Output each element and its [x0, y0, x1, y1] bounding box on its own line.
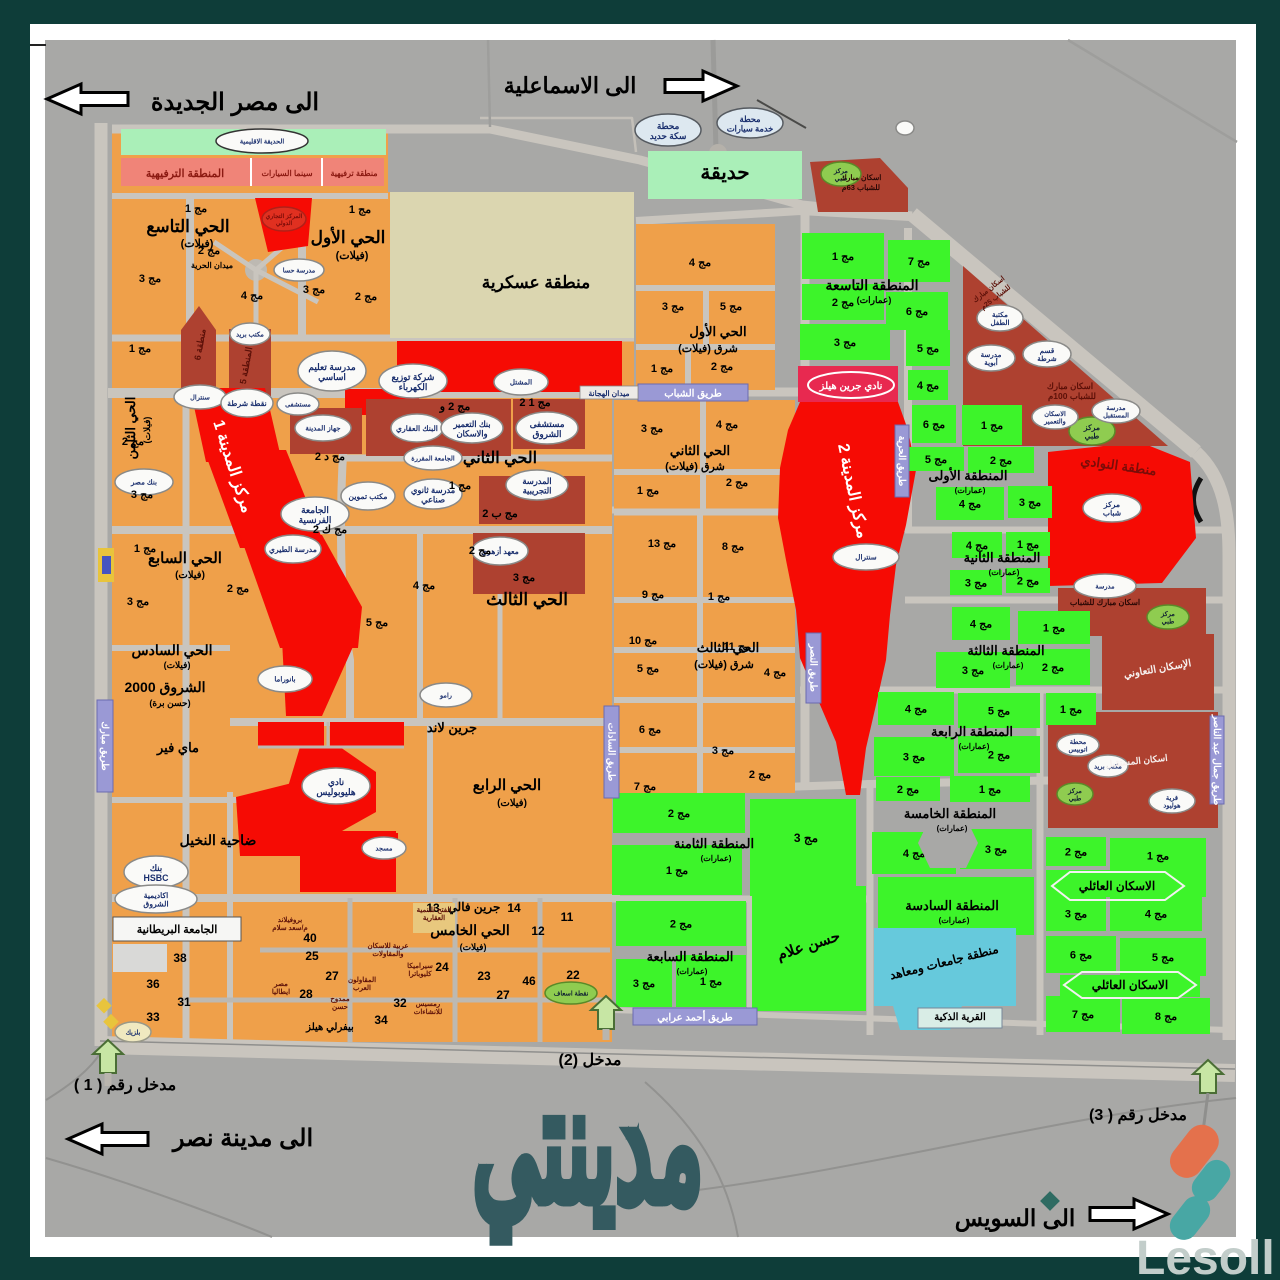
svg-text:الى مدينة نصر: الى مدينة نصر	[171, 1125, 313, 1153]
svg-text:مج 7: مج 7	[1072, 1009, 1094, 1021]
svg-text:سكة حديد: سكة حديد	[650, 131, 687, 141]
svg-text:التجريبية: التجريبية	[523, 486, 552, 496]
svg-text:(فيلات): (فيلات)	[497, 798, 527, 809]
svg-text:مج 13: مج 13	[648, 538, 676, 550]
svg-text:مج 3: مج 3	[962, 665, 984, 677]
svg-text:هليوبوليس: هليوبوليس	[316, 787, 355, 798]
svg-text:البنك العقاري: البنك العقاري	[396, 424, 438, 434]
svg-text:القرية الذكية: القرية الذكية	[934, 1012, 986, 1023]
svg-text:مج 2: مج 2	[1017, 576, 1039, 588]
svg-text:ممدوح: ممدوح	[330, 996, 350, 1003]
svg-text:27: 27	[496, 988, 510, 1002]
svg-text:الشروق 2000: الشروق 2000	[124, 679, 205, 696]
svg-text:شباب: شباب	[1103, 509, 1122, 518]
svg-text:مج 5: مج 5	[720, 301, 742, 313]
svg-text:12: 12	[531, 924, 545, 938]
svg-text:محطة: محطة	[740, 115, 761, 124]
svg-text:اسكان مبارك: اسكان مبارك	[841, 173, 882, 183]
svg-text:طريق النصر: طريق النصر	[808, 643, 819, 692]
svg-text:مج 1: مج 1	[185, 203, 207, 215]
svg-text:مج ب 2: مج ب 2	[482, 508, 518, 520]
svg-text:طبي: طبي	[1069, 795, 1082, 804]
svg-text:مج 1: مج 1	[979, 784, 1001, 796]
svg-text:مج 4: مج 4	[241, 290, 263, 302]
svg-text:شرق (فيلات): شرق (فيلات)	[678, 343, 738, 355]
svg-text:مج 3: مج 3	[139, 273, 161, 285]
svg-text:مج 3: مج 3	[641, 423, 663, 435]
svg-text:الجامعة البريطانية: الجامعة البريطانية	[137, 924, 218, 936]
svg-text:مج 5: مج 5	[1152, 952, 1174, 964]
svg-text:مركز: مركز	[1067, 787, 1082, 795]
svg-text:(عمارات): (عمارات)	[959, 742, 990, 752]
svg-text:34: 34	[374, 1013, 388, 1027]
svg-text:مج 10: مج 10	[629, 635, 657, 647]
svg-text:سيراميكا: سيراميكا	[407, 962, 433, 970]
svg-text:العقارية: العقارية	[423, 914, 445, 922]
svg-text:شرق (فيلات): شرق (فيلات)	[694, 659, 754, 671]
svg-text:اتوبيس: اتوبيس	[1068, 746, 1087, 754]
svg-text:مدخل رقم ( 1 ): مدخل رقم ( 1 )	[74, 1077, 176, 1095]
svg-text:مج 2: مج 2	[198, 245, 220, 257]
svg-text:الاسكان العائلي: الاسكان العائلي	[1092, 978, 1168, 993]
svg-text:ميدان الحرية: ميدان الحرية	[191, 261, 233, 271]
svg-text:مج 2: مج 2	[990, 455, 1012, 467]
svg-text:بانوراما: بانوراما	[274, 676, 295, 684]
svg-text:اساسي: اساسي	[318, 372, 346, 383]
svg-text:بنك مصر: بنك مصر	[130, 479, 157, 487]
svg-text:مدينتي: مدينتي	[473, 1055, 704, 1242]
svg-text:مستشفى: مستشفى	[530, 419, 565, 429]
svg-text:(عمارات): (عمارات)	[677, 967, 708, 977]
svg-text:مج 2 و: مج 2 و	[439, 401, 471, 413]
svg-text:طبي: طبي	[1162, 618, 1175, 627]
svg-text:الاسكان: الاسكان	[1044, 410, 1066, 418]
svg-text:جرين لاند: جرين لاند	[427, 720, 477, 736]
svg-text:بلزيك: بلزيك	[126, 1028, 141, 1036]
svg-text:مج 5: مج 5	[366, 617, 388, 629]
svg-text:مدرسة: مدرسة	[1106, 405, 1126, 412]
svg-text:مج 7: مج 7	[634, 781, 656, 793]
svg-text:(عمارات): (عمارات)	[993, 661, 1024, 671]
svg-text:الحي الخامس: الحي الخامس	[430, 922, 510, 939]
svg-text:مج 3: مج 3	[131, 489, 153, 501]
svg-text:(فيلات): (فيلات)	[336, 250, 369, 262]
svg-text:مستشفى: مستشفى	[285, 401, 311, 408]
svg-text:23: 23	[477, 969, 491, 983]
svg-text:مج 3: مج 3	[1019, 497, 1041, 509]
svg-text:31: 31	[177, 995, 191, 1009]
svg-text:مج 3: مج 3	[127, 596, 149, 608]
svg-text:مج 1: مج 1	[700, 976, 722, 988]
svg-text:سنترال: سنترال	[190, 394, 210, 402]
svg-text:مج 4: مج 4	[716, 419, 738, 431]
svg-text:المنطقة السابعة: المنطقة السابعة	[647, 949, 734, 964]
svg-text:(حسن برة): (حسن برة)	[149, 698, 190, 709]
svg-text:مج 3: مج 3	[985, 844, 1007, 856]
svg-text:32: 32	[393, 996, 407, 1010]
svg-text:المنطقة السادسة: المنطقة السادسة	[905, 898, 999, 913]
svg-text:24: 24	[435, 960, 449, 974]
svg-text:مج 5: مج 5	[917, 343, 939, 355]
svg-text:مج 2: مج 2	[355, 291, 377, 303]
svg-text:مج 11: مج 11	[723, 641, 751, 653]
svg-text:الكهرباء: الكهرباء	[399, 382, 428, 393]
svg-text:27: 27	[325, 969, 339, 983]
svg-text:الطفل: الطفل	[990, 319, 1009, 327]
svg-text:المشتل: المشتل	[510, 379, 532, 387]
svg-text:مج 3: مج 3	[1065, 909, 1087, 921]
svg-text:مج 1: مج 1	[134, 543, 156, 555]
svg-text:المنطقة الرابعة: المنطقة الرابعة	[931, 724, 1013, 740]
svg-text:مج 1: مج 1	[832, 251, 854, 263]
svg-text:صناعي: صناعي	[421, 495, 445, 505]
svg-text:حديقة: حديقة	[700, 162, 749, 184]
svg-text:مج 4: مج 4	[689, 257, 711, 269]
svg-text:مج 1: مج 1	[708, 591, 730, 603]
svg-text:مج 4: مج 4	[764, 667, 786, 679]
svg-text:مج 3: مج 3	[303, 284, 325, 296]
svg-text:عربية للاسكان: عربية للاسكان	[367, 942, 408, 950]
svg-text:مج 2: مج 2	[122, 436, 144, 448]
svg-text:مج 1: مج 1	[637, 485, 659, 497]
svg-text:نادي جرين هيلز: نادي جرين هيلز	[819, 381, 883, 392]
svg-text:الحي الثالث: الحي الثالث	[486, 590, 568, 610]
svg-text:مج 1: مج 1	[1060, 704, 1082, 716]
svg-text:محطة: محطة	[1070, 738, 1087, 746]
svg-text:مج 1: مج 1	[666, 865, 688, 877]
svg-text:مج 1: مج 1	[981, 420, 1003, 432]
svg-text:مج 2: مج 2	[749, 769, 771, 781]
svg-text:(عمارات): (عمارات)	[939, 916, 970, 926]
svg-text:مسجد: مسجد	[376, 845, 393, 852]
svg-text:(فيلات): (فيلات)	[460, 942, 487, 952]
svg-text:منطقة عسكرية: منطقة عسكرية	[482, 273, 591, 293]
svg-text:مج 8: مج 8	[722, 541, 744, 553]
svg-text:مدرسة: مدرسة	[1095, 584, 1115, 591]
svg-text:مج 5: مج 5	[988, 706, 1010, 718]
svg-text:المقاولون: المقاولون	[348, 976, 376, 984]
svg-text:مج 4: مج 4	[917, 380, 939, 392]
svg-text:مج 6: مج 6	[906, 306, 928, 318]
svg-text:ضاحية النخيل: ضاحية النخيل	[180, 832, 257, 848]
svg-text:مصر: مصر	[273, 981, 288, 988]
svg-text:مج 6: مج 6	[1070, 950, 1092, 962]
svg-text:محطة: محطة	[657, 121, 680, 131]
svg-text:مج 2: مج 2	[670, 919, 692, 931]
svg-text:طبي: طبي	[1085, 432, 1100, 442]
svg-text:خدمة سيارات: خدمة سيارات	[727, 124, 774, 134]
svg-text:اكاديمية: اكاديمية	[144, 891, 169, 900]
svg-text:ماي فير: ماي فير	[156, 740, 199, 756]
svg-text:مج 3: مج 3	[633, 978, 655, 990]
svg-text:الى الاسماعلية: الى الاسماعلية	[504, 73, 637, 98]
svg-text:مج د 2: مج د 2	[315, 451, 345, 463]
svg-text:رمسيس: رمسيس	[416, 1001, 441, 1008]
svg-text:المنطقة الثانية: المنطقة الثانية	[964, 550, 1041, 565]
svg-text:الدولي: الدولي	[276, 220, 293, 227]
svg-text:الحي الأول: الحي الأول	[689, 323, 746, 340]
svg-text:مج 3: مج 3	[662, 301, 684, 313]
svg-text:شرطة: شرطة	[1037, 355, 1056, 363]
svg-text:38: 38	[173, 951, 187, 965]
svg-text:للانشاءات: للانشاءات	[414, 1008, 442, 1016]
svg-text:طريق السادات: طريق السادات	[606, 723, 617, 782]
svg-text:رامو: رامو	[439, 692, 453, 700]
svg-text:مج 3: مج 3	[903, 752, 925, 764]
svg-text:مج 5: مج 5	[637, 663, 659, 675]
svg-text:الى السويس: الى السويس	[955, 1205, 1075, 1233]
svg-text:مج 1 2: مج 1 2	[519, 397, 550, 409]
svg-text:مج 2: مج 2	[897, 784, 919, 796]
svg-text:بروفيلاند: بروفيلاند	[278, 916, 303, 924]
svg-text:مكتبة: مكتبة	[992, 311, 1008, 319]
svg-text:مج 2: مج 2	[988, 750, 1010, 762]
svg-text:مج 3: مج 3	[712, 745, 734, 757]
svg-text:مج 1: مج 1	[129, 343, 151, 355]
svg-text:شرق (فيلات): شرق (فيلات)	[665, 461, 725, 473]
svg-text:الحي الثاني: الحي الثاني	[670, 443, 730, 459]
svg-text:مج 1: مج 1	[449, 480, 471, 492]
svg-text:40: 40	[303, 931, 317, 945]
svg-text:HSBC: HSBC	[144, 873, 170, 883]
svg-text:نقطة اسعاف: نقطة اسعاف	[554, 989, 589, 997]
svg-text:الشروق: الشروق	[533, 429, 562, 440]
svg-text:مكتب بريد: مكتب بريد	[236, 330, 264, 338]
svg-text:قسم: قسم	[1040, 347, 1055, 355]
svg-text:25: 25	[305, 949, 319, 963]
svg-text:المستقبل: المستقبل	[1103, 412, 1129, 420]
svg-text:(عمارات): (عمارات)	[701, 854, 732, 864]
svg-text:الاسكان العائلي: الاسكان العائلي	[1079, 879, 1155, 894]
svg-text:والاسكان: والاسكان	[456, 429, 487, 439]
svg-text:الحي التاسع: الحي التاسع	[146, 217, 229, 237]
svg-text:جرين فالي: جرين فالي	[448, 900, 501, 915]
svg-text:الحي الثاني: الحي الثاني	[463, 450, 537, 468]
svg-text:مكتب تموين: مكتب تموين	[349, 492, 388, 502]
svg-text:الحديقة الاقليمية: الحديقة الاقليمية	[240, 138, 285, 146]
svg-text:أبوية: أبوية	[984, 357, 997, 367]
svg-text:للشباب 63م: للشباب 63م	[842, 183, 880, 193]
svg-text:مج 2: مج 2	[1042, 662, 1064, 674]
svg-text:مج 2: مج 2	[227, 583, 249, 595]
svg-text:نقطة شرطة: نقطة شرطة	[227, 399, 267, 409]
svg-text:الحي السادس: الحي السادس	[132, 642, 213, 659]
svg-text:مج 1: مج 1	[1147, 851, 1169, 863]
svg-text:المنطقة الأولى: المنطقة الأولى	[929, 467, 1008, 484]
svg-text:مدرسة الطيري: مدرسة الطيري	[269, 545, 317, 555]
svg-text:مج ك 2: مج ك 2	[313, 524, 347, 536]
svg-text:(فيلات): (فيلات)	[164, 660, 191, 670]
svg-text:مج 4: مج 4	[970, 619, 992, 631]
svg-text:المنطقة الثالثة: المنطقة الثالثة	[967, 643, 1044, 658]
svg-text:مج 8: مج 8	[1155, 1011, 1177, 1023]
svg-text:مج 3: مج 3	[965, 578, 987, 590]
svg-text:مج 3: مج 3	[794, 831, 818, 846]
svg-text:مج 1: مج 1	[349, 204, 371, 216]
svg-text:مج 6: مج 6	[639, 724, 661, 736]
svg-text:الحي الرابع: الحي الرابع	[473, 777, 541, 795]
svg-text:مج 2: مج 2	[1065, 847, 1087, 859]
svg-text:جهاز المدينة: جهاز المدينة	[305, 425, 340, 433]
svg-text:مج 6: مج 6	[923, 419, 945, 431]
svg-text:والمقاولات: والمقاولات	[372, 950, 403, 958]
svg-text:46: 46	[522, 974, 536, 988]
svg-text:مج 2: مج 2	[726, 477, 748, 489]
svg-text:28: 28	[299, 987, 313, 1001]
svg-text:مج 2: مج 2	[832, 297, 854, 309]
svg-text:اسكان مبارك للشباب: اسكان مبارك للشباب	[1070, 598, 1140, 608]
svg-text:11: 11	[561, 910, 574, 924]
svg-text:سينما السيارات: سينما السيارات	[261, 169, 312, 179]
svg-text:مج 4: مج 4	[413, 580, 435, 592]
svg-text:الحي السابع: الحي السابع	[148, 550, 222, 568]
svg-text:14: 14	[507, 901, 521, 915]
svg-text:مدرسة حسا: مدرسة حسا	[283, 266, 316, 274]
svg-text:مج 7: مج 7	[908, 256, 930, 268]
svg-text:المنطقة الترفيهية: المنطقة الترفيهية	[146, 168, 224, 180]
svg-text:مدرسة: مدرسة	[981, 351, 1002, 359]
svg-text:(عمارات): (عمارات)	[955, 486, 986, 496]
svg-text:سنترال: سنترال	[855, 554, 876, 562]
svg-text:طريق مبارك: طريق مبارك	[99, 721, 110, 771]
svg-text:ايطاليا: ايطاليا	[272, 988, 290, 996]
svg-text:مج 4: مج 4	[959, 499, 981, 511]
svg-text:مج 5: مج 5	[925, 454, 947, 466]
svg-text:بنك: بنك	[150, 863, 163, 873]
svg-text:مج 2: مج 2	[668, 808, 690, 820]
svg-text:للشباب 100م: للشباب 100م	[1048, 391, 1096, 402]
svg-text:المنطقة التاسعة: المنطقة التاسعة	[825, 277, 918, 293]
svg-text:المنطقة الخامسة: المنطقة الخامسة	[904, 806, 996, 821]
svg-text:والتعمير: والتعمير	[1043, 418, 1066, 426]
svg-text:الفتح للتنمية: الفتح للتنمية	[417, 906, 452, 914]
svg-text:(عمارات): (عمارات)	[857, 295, 892, 306]
svg-text:مج 1: مج 1	[1043, 623, 1065, 635]
svg-text:العرب: العرب	[353, 984, 371, 992]
svg-text:هوليود: هوليود	[1163, 802, 1181, 810]
svg-text:طريق أحمد عرابي: طريق أحمد عرابي	[657, 1011, 733, 1024]
svg-text:مدخل رقم ( 3): مدخل رقم ( 3)	[1089, 1107, 1187, 1125]
svg-text:مج 2: مج 2	[469, 545, 491, 557]
svg-text:مج 4: مج 4	[905, 704, 927, 716]
svg-text:مج 3: مج 3	[513, 572, 535, 584]
svg-text:33: 33	[146, 1010, 160, 1024]
svg-text:حسن: حسن	[332, 1004, 348, 1011]
svg-text:منطقة ترفيهية: منطقة ترفيهية	[330, 169, 377, 179]
svg-text:مج 2: مج 2	[711, 361, 733, 373]
svg-text:الى مصر الجديدة: الى مصر الجديدة	[151, 89, 319, 117]
svg-text:مج 3: مج 3	[834, 337, 856, 349]
svg-text:طريق الحرية: طريق الحرية	[896, 436, 907, 487]
svg-text:(عمارات): (عمارات)	[937, 824, 968, 834]
svg-text:36: 36	[146, 977, 160, 991]
svg-text:طريق الشباب: طريق الشباب	[664, 389, 722, 400]
svg-text:الجامعة: الجامعة	[301, 505, 329, 515]
svg-text:(فيلات): (فيلات)	[175, 570, 205, 581]
svg-text:مج 9: مج 9	[642, 589, 664, 601]
svg-text:طريق جمال عبد الناصر: طريق جمال عبد الناصر	[1211, 714, 1222, 806]
svg-text:مج 4: مج 4	[1145, 909, 1167, 921]
svg-text:بيفرلي هيلز: بيفرلي هيلز	[305, 1022, 354, 1033]
svg-text:قرية: قرية	[1166, 795, 1178, 802]
svg-text:الشروق: الشروق	[143, 900, 168, 910]
svg-text:المنطقة الثامنة: المنطقة الثامنة	[674, 836, 754, 851]
svg-text:م/سعد سلام: م/سعد سلام	[272, 924, 308, 932]
svg-text:22: 22	[566, 968, 580, 982]
svg-text:مركز: مركز	[1160, 610, 1175, 618]
svg-text:المركز التجاري: المركز التجاري	[266, 213, 303, 220]
svg-text:الحي الثامن: الحي الثامن	[123, 397, 139, 460]
svg-text:(عمارات): (عمارات)	[989, 568, 1020, 578]
svg-text:الحي الأول: الحي الأول	[311, 226, 386, 248]
svg-text:مج 1: مج 1	[651, 363, 673, 375]
svg-text:كليوباترا: كليوباترا	[408, 970, 432, 978]
svg-text:الجامعة المقررة: الجامعة المقررة	[411, 455, 455, 463]
svg-text:ميدان الهجانة: ميدان الهجانة	[589, 389, 630, 399]
svg-text:Lesoll: Lesoll	[1136, 1232, 1275, 1280]
